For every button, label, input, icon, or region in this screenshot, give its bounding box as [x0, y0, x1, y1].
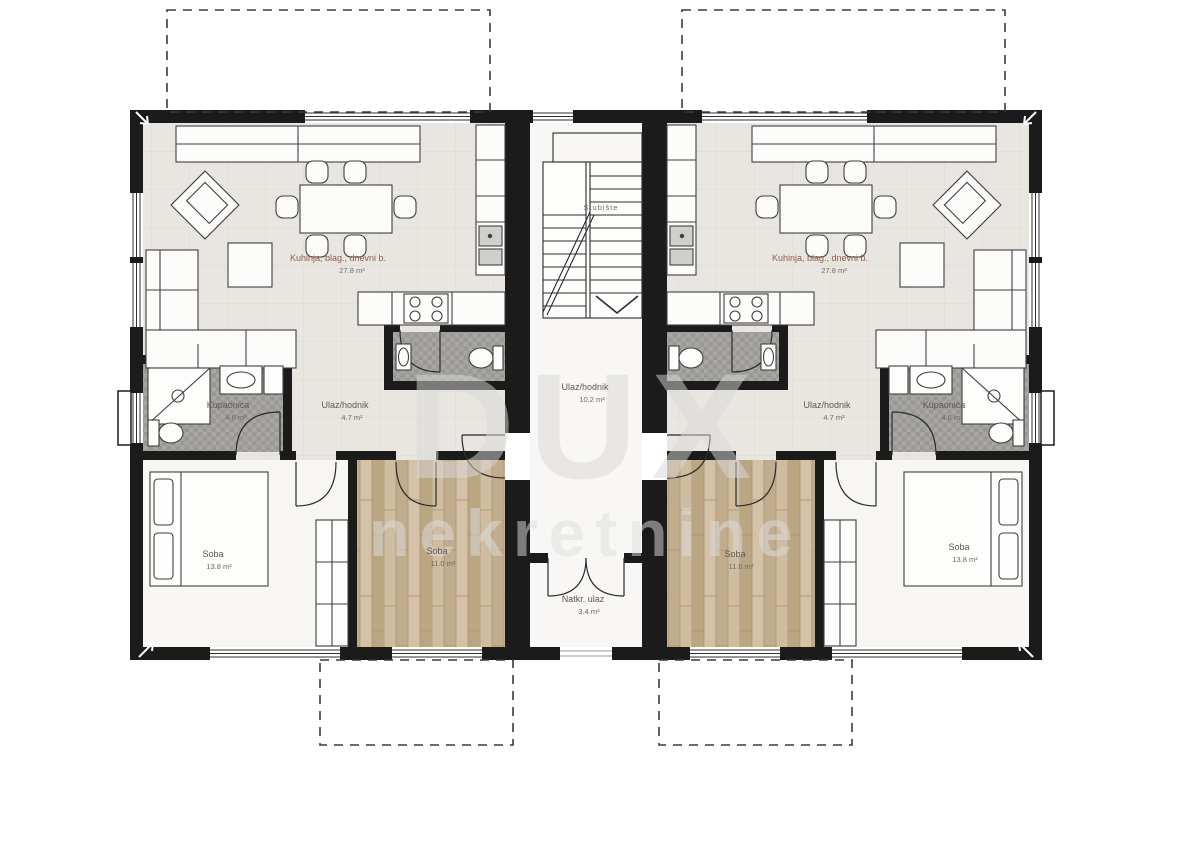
- floor-plan: DUX nekretnine Kuhinja, blag., dnevni b.…: [0, 0, 1200, 866]
- label-core-hall: Ulaz/hodnik: [561, 382, 609, 392]
- label-bedroom-large-left: Soba: [202, 549, 223, 559]
- label-bedroom-large-right: Soba: [948, 542, 969, 552]
- area-bedroom-large-right: 13.8 m²: [952, 555, 978, 564]
- terrace-outline-bottom-right: [659, 660, 852, 745]
- area-core-hall: 10.2 m²: [579, 395, 605, 404]
- label-bedroom-small-right: Soba: [724, 549, 745, 559]
- area-bathroom-left: 4.6 m²: [225, 413, 247, 422]
- label-entrance: Natkr. ulaz: [562, 594, 605, 604]
- watermark: DUX nekretnine: [369, 342, 803, 570]
- area-bedroom-large-left: 13.8 m²: [206, 562, 232, 571]
- area-hall-left: 4.7 m²: [341, 413, 363, 422]
- entrance-steps: [560, 651, 612, 656]
- label-living-left: Kuhinja, blag., dnevni b.: [290, 253, 386, 263]
- label-hall-right: Ulaz/hodnik: [803, 400, 851, 410]
- area-bathroom-right: 4.6 m²: [941, 413, 963, 422]
- terrace-outline-bottom-left: [320, 660, 513, 745]
- floor-plan-page: DUX nekretnine Kuhinja, blag., dnevni b.…: [0, 0, 1200, 866]
- area-entrance: 3.4 m²: [578, 607, 600, 616]
- area-hall-right: 4.7 m²: [823, 413, 845, 422]
- label-bedroom-small-left: Soba: [426, 546, 447, 556]
- label-bathroom-left: Kupaonica: [207, 400, 250, 410]
- terrace-outline-top-left: [167, 10, 490, 112]
- terrace-outline-top-right: [682, 10, 1005, 112]
- label-living-right: Kuhinja, blag., dnevni b.: [772, 253, 868, 263]
- area-bedroom-small-left: 11.0 m²: [431, 559, 456, 568]
- area-living-left: 27.8 m²: [339, 266, 365, 275]
- watermark-brand: DUX: [407, 342, 766, 510]
- area-living-right: 27.8 m²: [821, 266, 847, 275]
- label-hall-left: Ulaz/hodnik: [321, 400, 369, 410]
- area-bedroom-small-right: 11.0 m²: [729, 562, 754, 571]
- label-bathroom-right: Kupaonica: [923, 400, 966, 410]
- label-staircase: Stubište: [583, 203, 618, 212]
